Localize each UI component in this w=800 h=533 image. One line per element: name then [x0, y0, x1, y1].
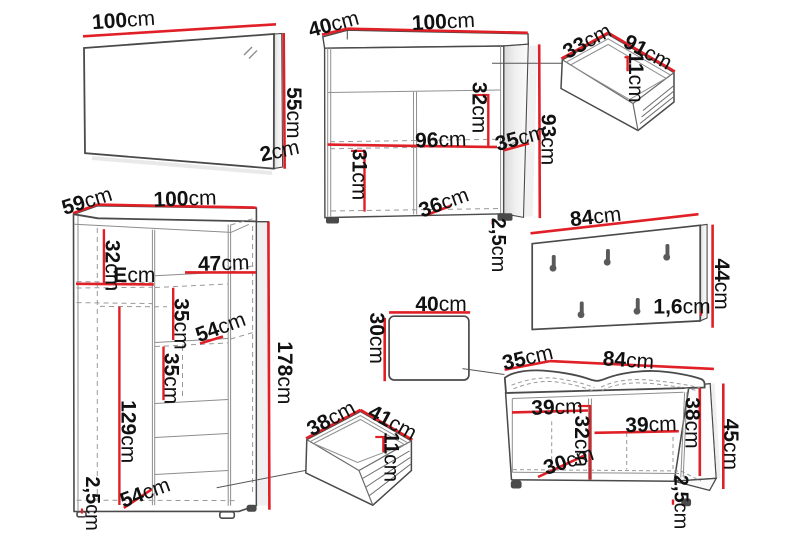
svg-text:35cm: 35cm	[170, 298, 193, 349]
svg-text:2,5cm: 2,5cm	[670, 475, 692, 529]
svg-text:100cm: 100cm	[411, 9, 475, 35]
svg-text:30cm: 30cm	[365, 313, 388, 364]
svg-text:100cm: 100cm	[91, 7, 155, 34]
svg-text:129cm: 129cm	[116, 400, 139, 463]
svg-text:47cm: 47cm	[198, 251, 250, 276]
svg-text:11cm: 11cm	[379, 432, 402, 482]
svg-text:38cm: 38cm	[680, 397, 703, 448]
svg-text:100cm: 100cm	[153, 186, 217, 211]
svg-text:35cm: 35cm	[160, 353, 183, 404]
svg-text:84cm: 84cm	[602, 347, 655, 374]
svg-text:55cm: 55cm	[282, 87, 305, 138]
svg-text:32cm: 32cm	[468, 82, 491, 133]
svg-text:39cm: 39cm	[625, 413, 677, 438]
svg-text:2,5cm: 2,5cm	[81, 476, 103, 530]
svg-text:96cm: 96cm	[415, 128, 467, 153]
svg-text:178cm: 178cm	[273, 341, 296, 404]
svg-text:11cm: 11cm	[624, 52, 647, 102]
svg-text:93cm: 93cm	[537, 114, 560, 165]
svg-text:Ecm: Ecm	[113, 264, 155, 287]
svg-text:1,6cm: 1,6cm	[653, 296, 710, 319]
svg-text:40cm: 40cm	[415, 293, 466, 316]
svg-text:44cm: 44cm	[710, 258, 733, 309]
svg-text:45cm: 45cm	[719, 419, 742, 470]
svg-text:84cm: 84cm	[569, 203, 623, 232]
svg-text:2,5cm: 2,5cm	[487, 218, 509, 272]
svg-text:31cm: 31cm	[348, 149, 371, 200]
